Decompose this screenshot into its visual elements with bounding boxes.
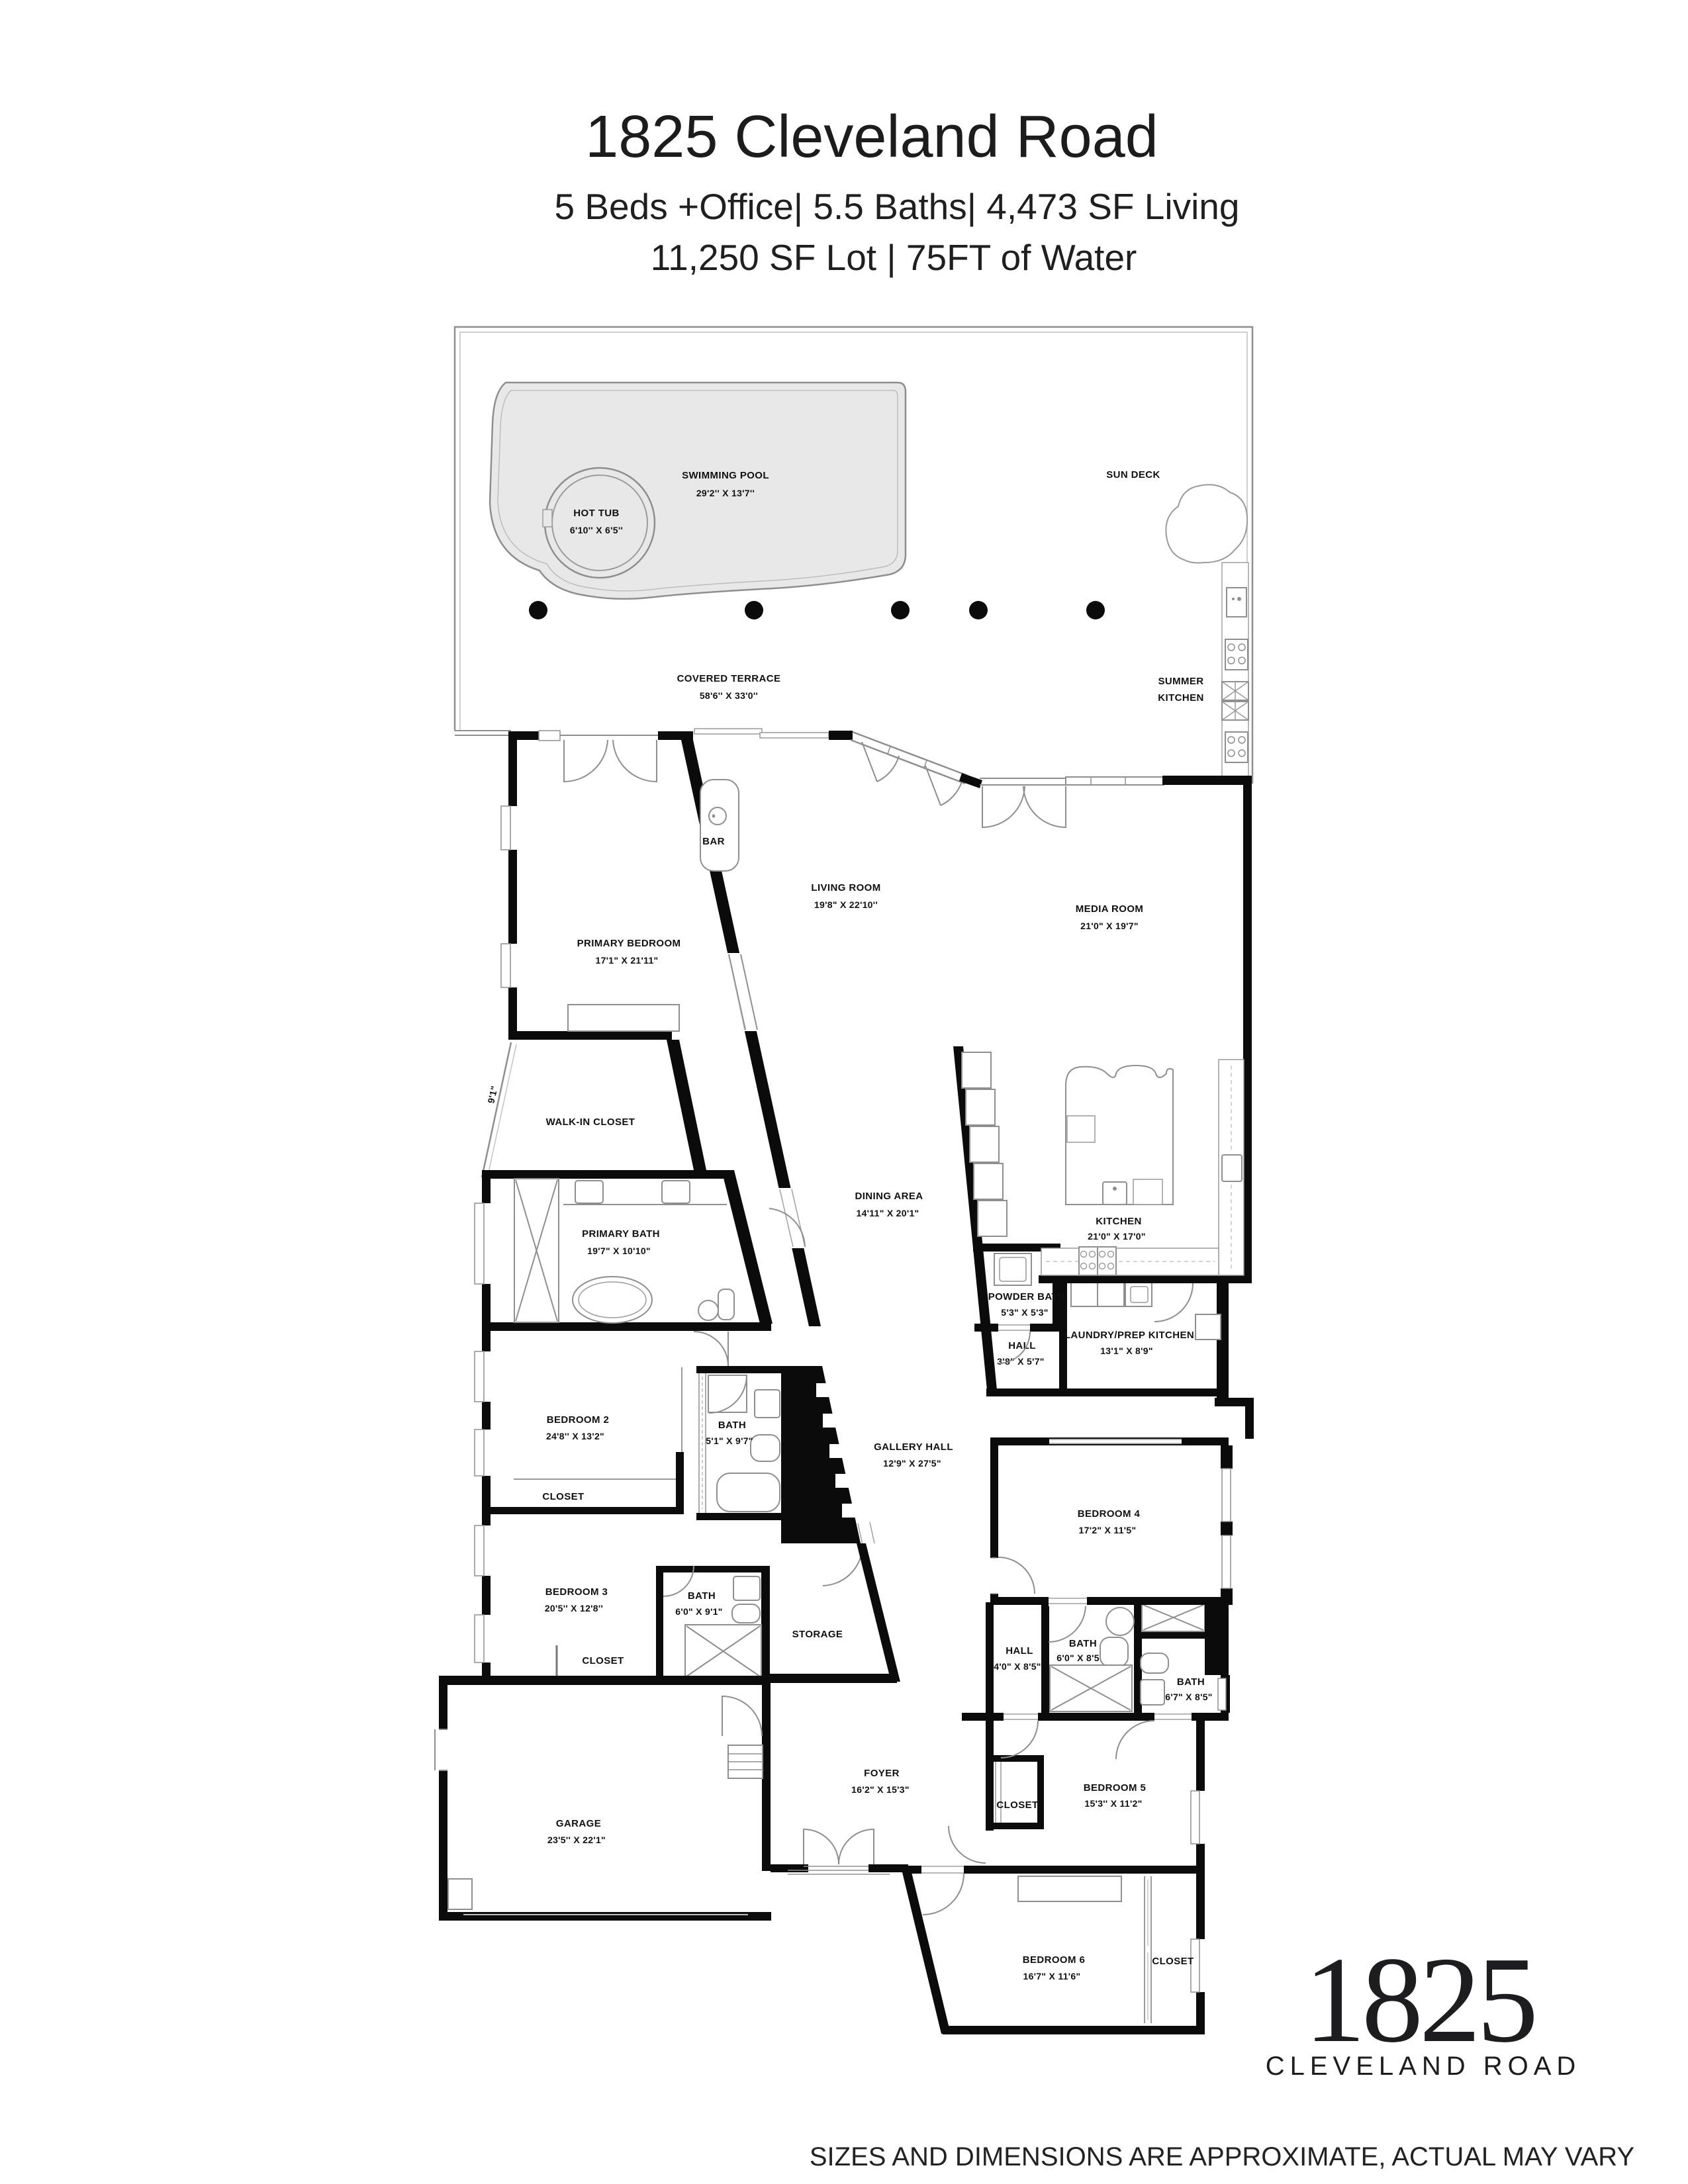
svg-text:6'7" X 8'5": 6'7" X 8'5" [1165, 1692, 1213, 1702]
svg-text:21'0" X 19'7": 21'0" X 19'7" [1080, 921, 1139, 931]
svg-text:11,250 SF Lot | 75FT of Water: 11,250 SF Lot | 75FT of Water [651, 237, 1137, 278]
svg-text:BATH: BATH [1069, 1638, 1097, 1649]
svg-text:MEDIA ROOM: MEDIA ROOM [1076, 903, 1144, 915]
svg-text:WALK-IN CLOSET: WALK-IN CLOSET [546, 1116, 635, 1128]
svg-text:BATH: BATH [688, 1590, 716, 1602]
svg-text:3'8" X 5'7": 3'8" X 5'7" [997, 1356, 1045, 1367]
svg-text:15'3'' X 11'2": 15'3'' X 11'2" [1084, 1798, 1142, 1809]
svg-text:SUMMER: SUMMER [1158, 676, 1203, 687]
svg-text:HALL: HALL [1006, 1645, 1033, 1657]
svg-text:19'7" X 10'10": 19'7" X 10'10" [587, 1246, 651, 1256]
svg-text:HALL: HALL [1008, 1340, 1036, 1351]
svg-text:16'7" X 11'6": 16'7" X 11'6" [1023, 1971, 1081, 1981]
svg-text:17'1" X 21'11": 17'1" X 21'11" [596, 955, 659, 966]
svg-text:6'0" X 8'5": 6'0" X 8'5" [1056, 1653, 1104, 1663]
svg-text:LAUNDRY/PREP KITCHEN: LAUNDRY/PREP KITCHEN [1064, 1330, 1194, 1341]
svg-text:19'8" X 22'10'': 19'8" X 22'10'' [814, 899, 878, 910]
svg-text:6'0" X 9'1": 6'0" X 9'1" [675, 1606, 723, 1617]
svg-text:1825 Cleveland Road: 1825 Cleveland Road [585, 104, 1158, 170]
svg-text:SIZES AND DIMENSIONS ARE APPRO: SIZES AND DIMENSIONS ARE APPROXIMATE, AC… [810, 2142, 1634, 2171]
svg-text:CLOSET: CLOSET [582, 1655, 624, 1666]
svg-text:POWDER BATH: POWDER BATH [988, 1291, 1066, 1302]
svg-text:DINING AREA: DINING AREA [855, 1191, 923, 1202]
svg-text:12'9" X 27'5": 12'9" X 27'5" [883, 1458, 941, 1469]
svg-text:GARAGE: GARAGE [556, 1818, 601, 1829]
svg-text:20'5'' X 12'8'': 20'5'' X 12'8'' [545, 1603, 603, 1614]
svg-text:BATH: BATH [718, 1420, 746, 1431]
svg-text:BEDROOM 4: BEDROOM 4 [1078, 1508, 1141, 1520]
svg-text:BEDROOM 5: BEDROOM 5 [1084, 1782, 1146, 1794]
svg-text:5 Beds +Office| 5.5 Baths| 4,4: 5 Beds +Office| 5.5 Baths| 4,473 SF Livi… [555, 186, 1240, 227]
svg-text:21'0" X 17'0": 21'0" X 17'0" [1088, 1231, 1146, 1242]
svg-text:CLEVELAND ROAD: CLEVELAND ROAD [1266, 2052, 1581, 2081]
svg-text:BATH: BATH [1177, 1676, 1205, 1688]
svg-text:BAR: BAR [702, 836, 725, 847]
svg-text:6'10'' X 6'5'': 6'10'' X 6'5'' [570, 525, 623, 535]
svg-text:PRIMARY BEDROOM: PRIMARY BEDROOM [577, 938, 681, 949]
svg-text:4'0" X 8'5": 4'0" X 8'5" [994, 1661, 1041, 1672]
svg-text:BEDROOM 6: BEDROOM 6 [1023, 1954, 1085, 1966]
svg-text:SWIMMING POOL: SWIMMING POOL [682, 470, 769, 481]
svg-text:SUN DECK: SUN DECK [1106, 469, 1160, 480]
svg-text:5'3" X 5'3": 5'3" X 5'3" [1001, 1307, 1049, 1318]
svg-text:13'1" X 8'9": 13'1" X 8'9" [1100, 1345, 1153, 1356]
svg-text:FOYER: FOYER [864, 1768, 900, 1779]
svg-text:5'1" X 9'7": 5'1" X 9'7" [706, 1435, 753, 1446]
svg-text:29'2'' X 13'7'': 29'2'' X 13'7'' [696, 488, 755, 498]
svg-text:CLOSET: CLOSET [996, 1799, 1038, 1811]
svg-text:BEDROOM 3: BEDROOM 3 [545, 1586, 608, 1598]
svg-text:KITCHEN: KITCHEN [1158, 692, 1203, 704]
svg-text:BEDROOM 2: BEDROOM 2 [547, 1414, 609, 1426]
svg-text:14'11" X 20'1": 14'11" X 20'1" [857, 1208, 919, 1218]
svg-text:24'8'' X 13'2": 24'8'' X 13'2" [546, 1431, 604, 1441]
svg-text:CLOSET: CLOSET [542, 1491, 584, 1502]
svg-text:CLOSET: CLOSET [1152, 1956, 1194, 1967]
svg-text:PRIMARY BATH: PRIMARY BATH [582, 1228, 660, 1240]
svg-text:17'2" X 11'5": 17'2" X 11'5" [1079, 1525, 1137, 1535]
svg-text:58'6'' X 33'0'': 58'6'' X 33'0'' [700, 690, 758, 701]
svg-text:LIVING ROOM: LIVING ROOM [811, 882, 880, 893]
svg-text:16'2" X 15'3": 16'2" X 15'3" [851, 1784, 910, 1795]
svg-text:23'5'' X 22'1": 23'5'' X 22'1" [547, 1835, 606, 1845]
svg-text:GALLERY HALL: GALLERY HALL [874, 1441, 953, 1453]
svg-text:COVERED TERRACE: COVERED TERRACE [677, 673, 781, 684]
svg-text:KITCHEN: KITCHEN [1096, 1216, 1141, 1227]
svg-text:STORAGE: STORAGE [792, 1629, 843, 1640]
svg-text:1825: 1825 [1304, 1932, 1534, 2068]
svg-text:HOT TUB: HOT TUB [573, 508, 619, 519]
